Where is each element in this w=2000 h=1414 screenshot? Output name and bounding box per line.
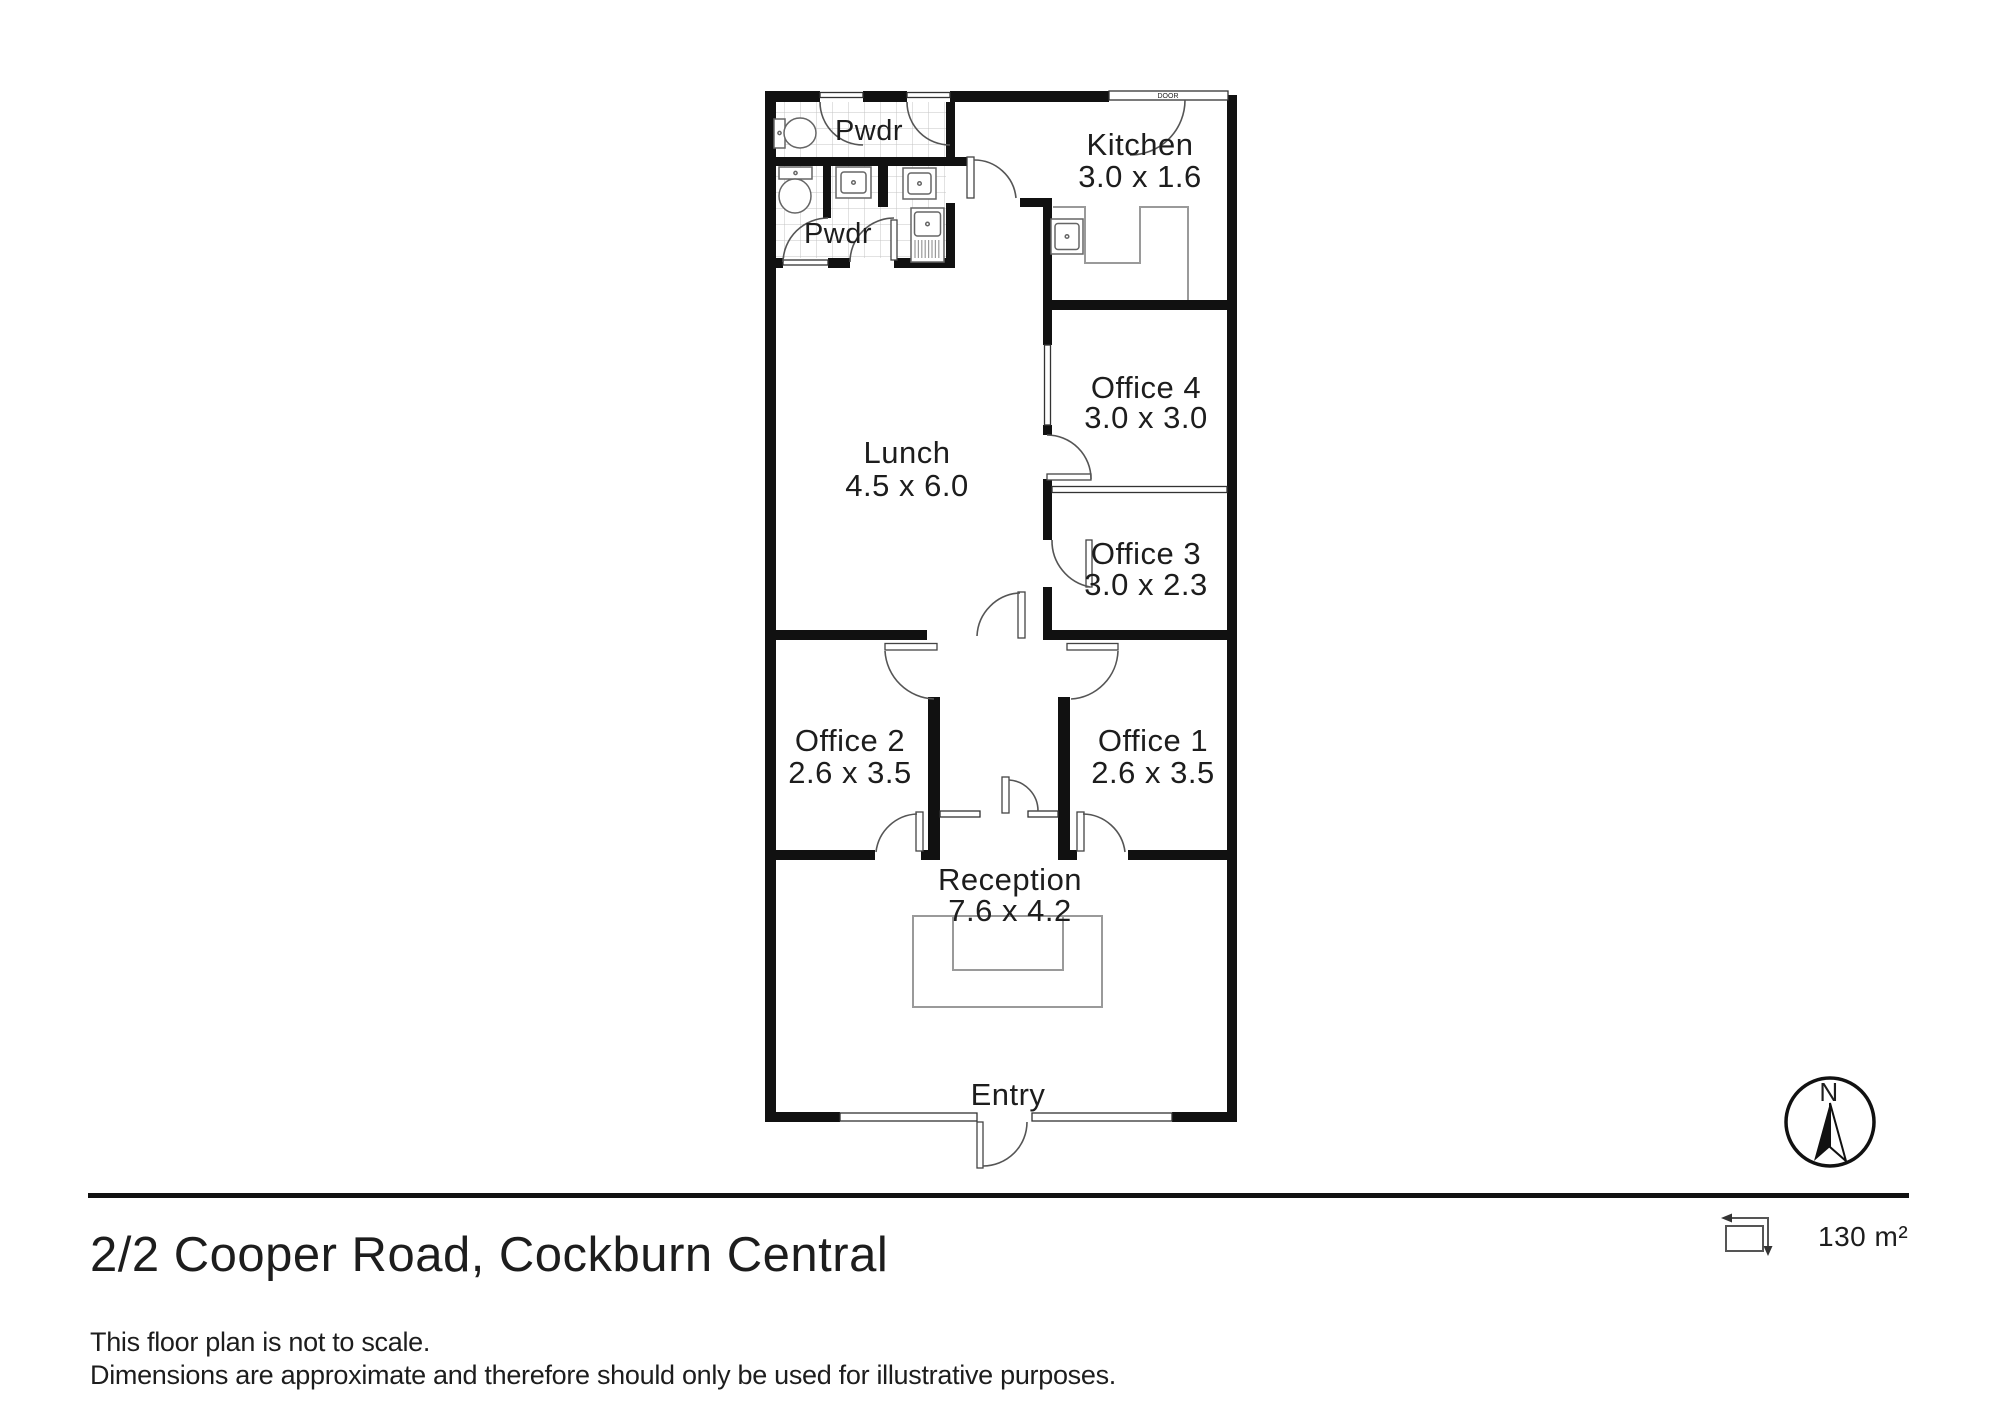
pwdr-top-label: Pwdr — [835, 115, 903, 147]
office2-label: Office 2 — [795, 723, 905, 758]
compass-needle-light — [1830, 1103, 1846, 1161]
footer: 2/2 Cooper Road, Cockburn Central 130 m²… — [88, 1193, 1909, 1390]
lunch-door-arc — [977, 593, 1020, 636]
office4-office3-divider — [1052, 487, 1227, 493]
office3-label: Office 3 — [1091, 536, 1201, 571]
corridor-door-arc — [1009, 780, 1038, 811]
office1-top-door-arc — [1071, 651, 1118, 699]
left-exterior-wall — [765, 91, 776, 1122]
front-window-left — [840, 1113, 977, 1121]
office1-label: Office 1 — [1098, 723, 1208, 758]
disclaimer-line2: Dimensions are approximate and therefore… — [90, 1360, 1116, 1390]
floor-area-value: 130 m² — [1818, 1221, 1908, 1252]
top-door-label: DOOR — [1158, 93, 1179, 100]
office4-door-arc — [1047, 435, 1091, 479]
kitchen-sink-icon — [1051, 219, 1083, 254]
entry-label: Entry — [971, 1077, 1046, 1112]
office2-top-door-arc — [885, 651, 934, 699]
reception-dims: 7.6 x 4.2 — [948, 893, 1071, 928]
toilet-icon-lower — [779, 167, 812, 213]
laundry-trough-icon — [911, 208, 944, 262]
reception-desk — [913, 916, 1102, 1007]
footer-divider — [88, 1193, 1909, 1198]
lunch-label: Lunch — [864, 435, 951, 470]
north-compass: N — [1786, 1077, 1874, 1166]
pwdr-lower-label: Pwdr — [804, 218, 872, 250]
office3-dims: 3.0 x 2.3 — [1084, 567, 1207, 602]
toilet-icon-top — [774, 118, 816, 148]
disclaimer-line1: This floor plan is not to scale. — [90, 1327, 430, 1357]
reception-label: Reception — [938, 862, 1082, 897]
front-window-right — [1032, 1113, 1172, 1121]
office4-dims: 3.0 x 3.0 — [1084, 400, 1207, 435]
vestibule-door-arc — [974, 160, 1016, 198]
floorplan-page: DOOR — [0, 0, 2000, 1414]
lunch-dims: 4.5 x 6.0 — [845, 468, 968, 503]
right-exterior-wall — [1227, 95, 1237, 1122]
kitchen-label: Kitchen — [1087, 127, 1194, 162]
kitchen-dims: 3.0 x 1.6 — [1078, 159, 1201, 194]
office2-dims: 2.6 x 3.5 — [788, 755, 911, 790]
entry-door-arc — [983, 1122, 1027, 1166]
office4-glass-partition — [1045, 345, 1051, 425]
office1-dims: 2.6 x 3.5 — [1091, 755, 1214, 790]
floor-area-icon — [1721, 1214, 1773, 1257]
kitchen-bottom-wall — [1043, 300, 1237, 310]
vanity-sink-icon-1 — [836, 167, 871, 198]
compass-needle-dark — [1814, 1103, 1830, 1161]
page-title: 2/2 Cooper Road, Cockburn Central — [90, 1228, 888, 1282]
compass-north-label: N — [1819, 1077, 1838, 1107]
office2-door-arc — [876, 814, 917, 852]
floor-plan: DOOR — [765, 91, 1237, 1168]
floorplan-canvas: DOOR — [0, 0, 2000, 1414]
office1-door-arc — [1083, 814, 1125, 852]
vanity-sink-icon-2 — [903, 168, 936, 199]
